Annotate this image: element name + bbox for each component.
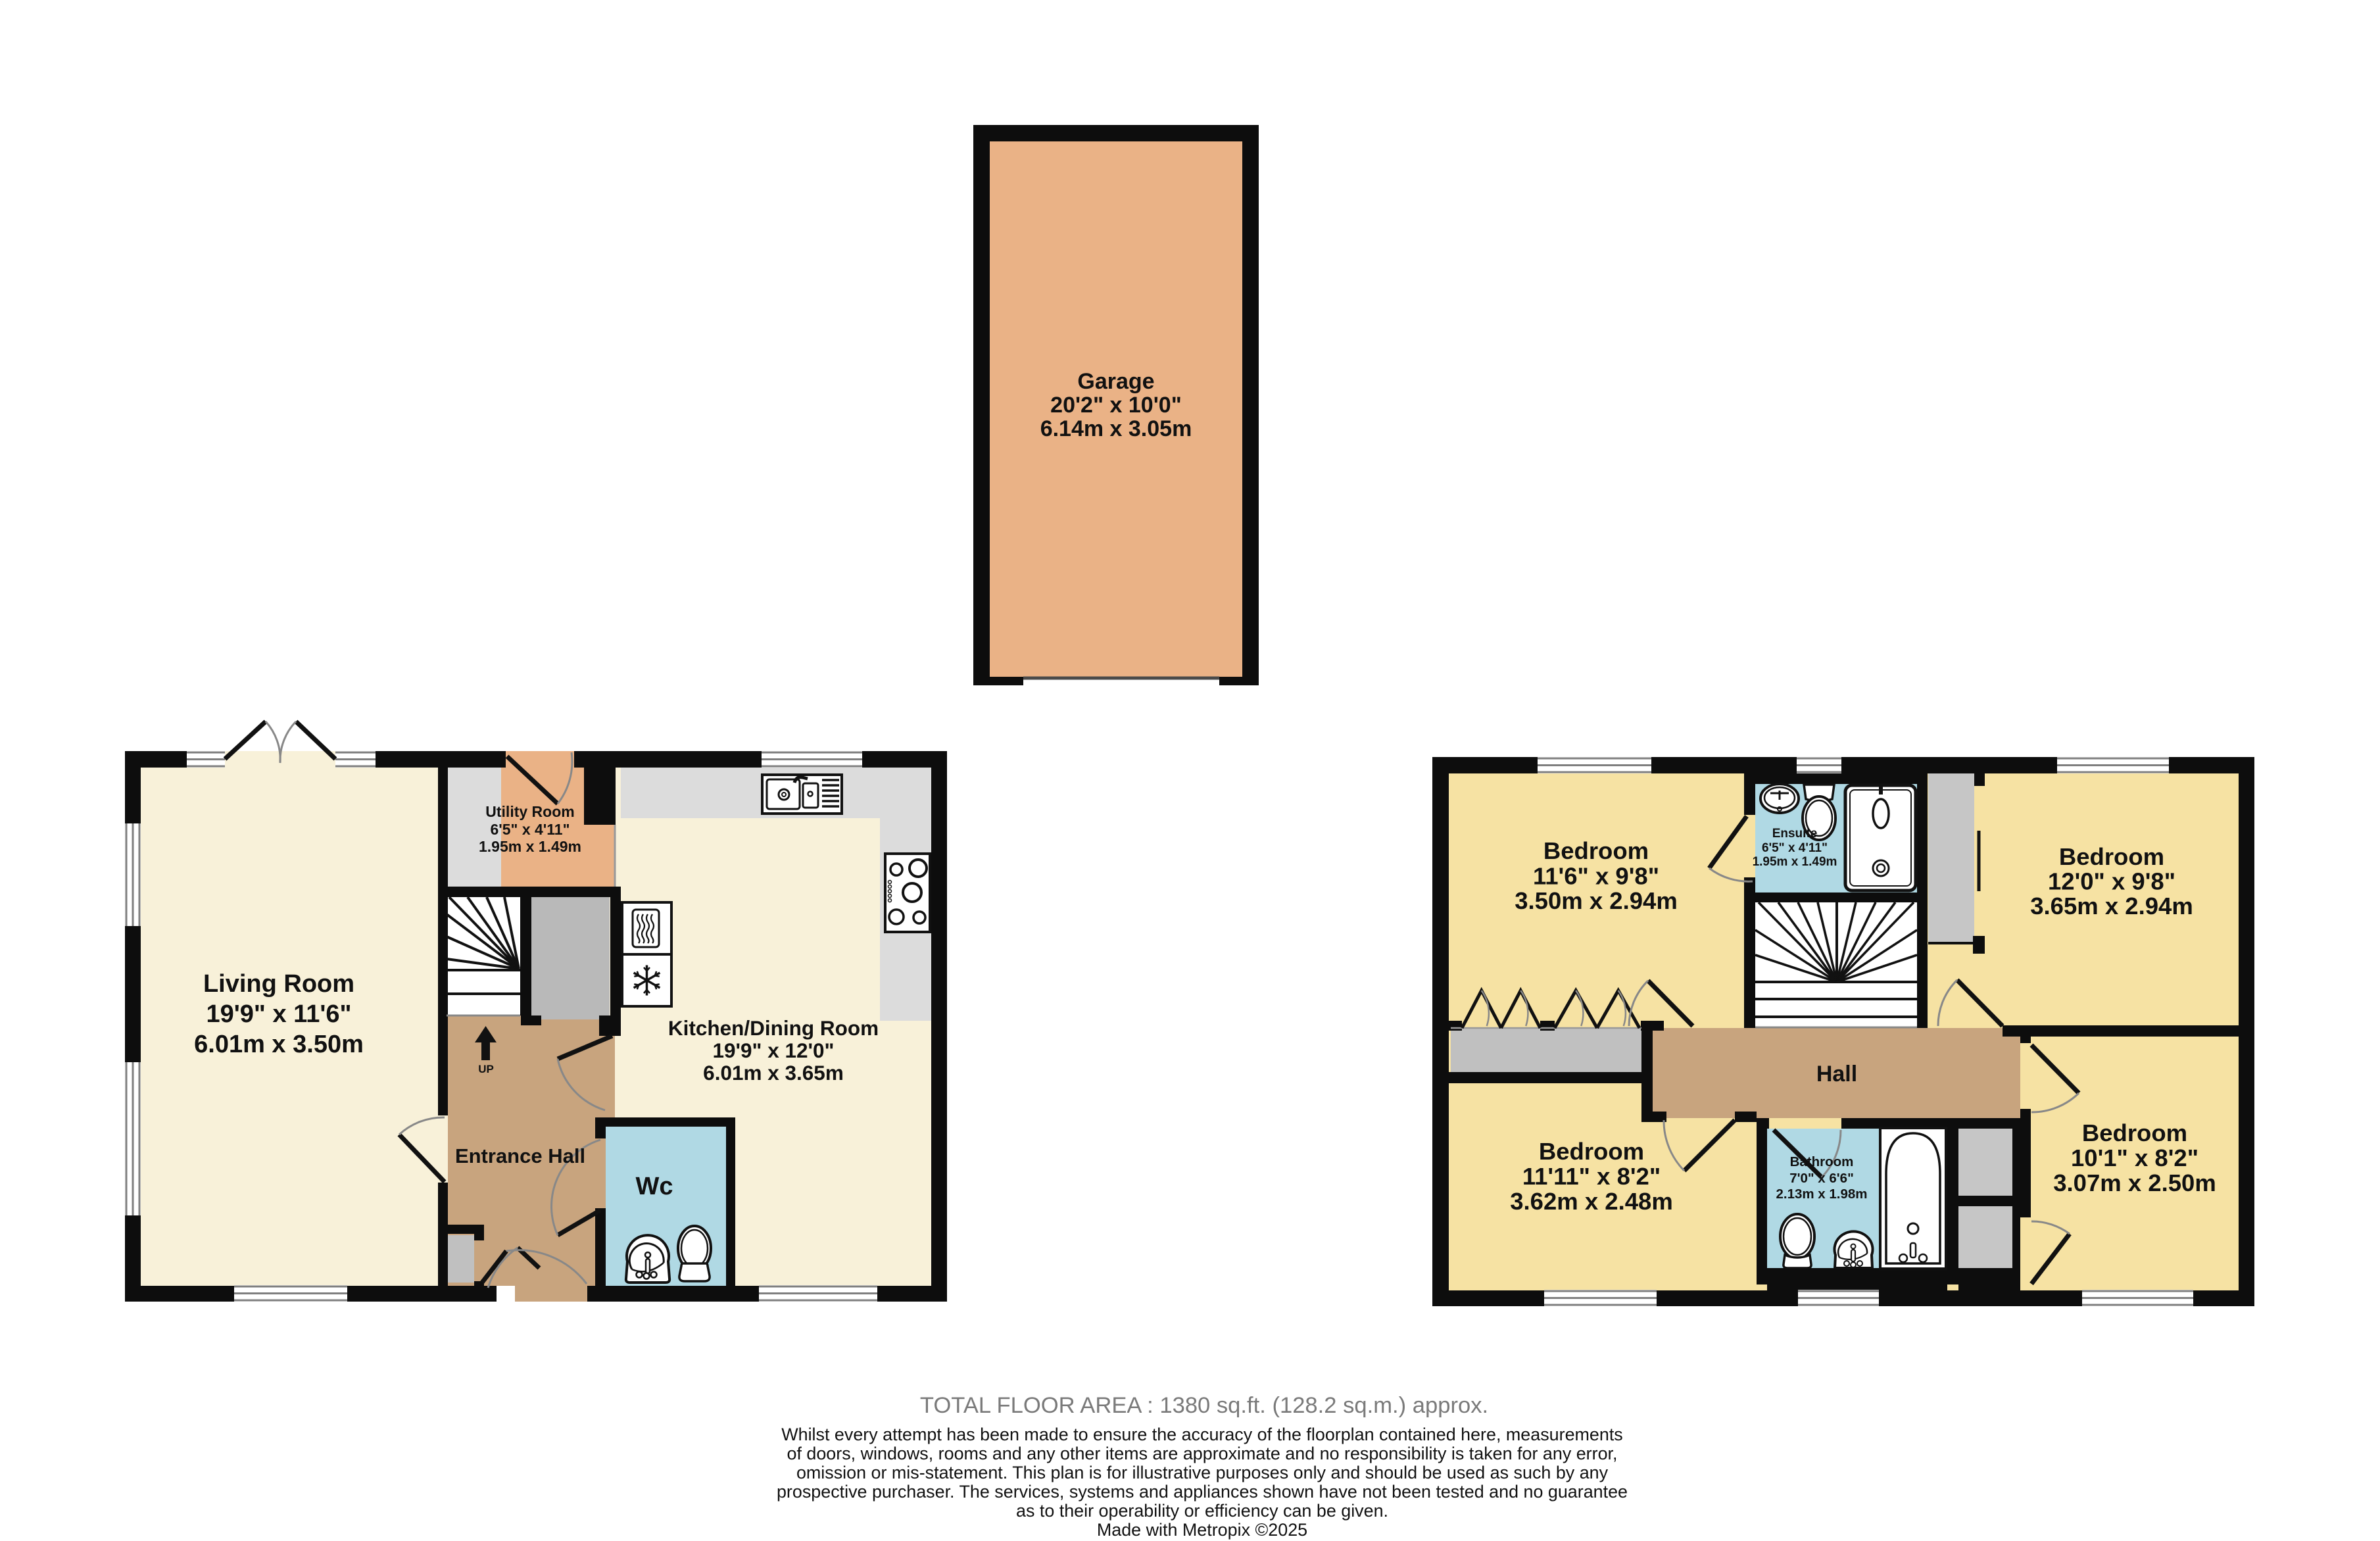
svg-text:19'9" x 12'0": 19'9" x 12'0" bbox=[713, 1039, 835, 1062]
svg-text:Utility Room: Utility Room bbox=[485, 803, 574, 820]
svg-text:Hall: Hall bbox=[1816, 1062, 1857, 1087]
svg-text:Bathroom: Bathroom bbox=[1790, 1154, 1854, 1169]
svg-text:Bedroom: Bedroom bbox=[2059, 843, 2164, 870]
svg-text:Garage: Garage bbox=[1077, 369, 1154, 394]
svg-text:Entrance Hall: Entrance Hall bbox=[455, 1144, 585, 1167]
svg-text:6.14m x 3.05m: 6.14m x 3.05m bbox=[1040, 416, 1192, 441]
svg-text:Bedroom: Bedroom bbox=[1539, 1138, 1644, 1165]
svg-text:omission or mis-statement. Thi: omission or mis-statement. This plan is … bbox=[796, 1463, 1609, 1482]
svg-text:11'6" x 9'8": 11'6" x 9'8" bbox=[1533, 863, 1659, 890]
svg-text:1.95m x 1.49m: 1.95m x 1.49m bbox=[479, 838, 581, 855]
svg-text:20'2" x 10'0": 20'2" x 10'0" bbox=[1050, 393, 1182, 418]
svg-text:3.65m x 2.94m: 3.65m x 2.94m bbox=[2030, 893, 2193, 919]
svg-text:Living Room: Living Room bbox=[203, 970, 354, 998]
svg-text:Bedroom: Bedroom bbox=[2082, 1119, 2187, 1146]
svg-text:7'0" x 6'6": 7'0" x 6'6" bbox=[1789, 1171, 1854, 1186]
svg-text:Bedroom: Bedroom bbox=[1543, 837, 1649, 864]
svg-text:prospective purchaser. The ser: prospective purchaser. The services, sys… bbox=[777, 1482, 1628, 1502]
svg-text:6'5" x 4'11": 6'5" x 4'11" bbox=[1762, 841, 1828, 855]
svg-text:10'1" x 8'2": 10'1" x 8'2" bbox=[2071, 1144, 2198, 1171]
svg-text:TOTAL FLOOR AREA : 1380 sq.ft.: TOTAL FLOOR AREA : 1380 sq.ft. (128.2 sq… bbox=[920, 1393, 1488, 1418]
svg-text:6.01m x 3.50m: 6.01m x 3.50m bbox=[194, 1031, 364, 1058]
svg-text:Ensuite: Ensuite bbox=[1772, 827, 1818, 841]
svg-text:11'11" x 8'2": 11'11" x 8'2" bbox=[1522, 1163, 1661, 1190]
svg-text:3.62m x 2.48m: 3.62m x 2.48m bbox=[1510, 1188, 1673, 1215]
svg-text:Whilst every attempt has been: Whilst every attempt has been made to en… bbox=[781, 1425, 1623, 1444]
svg-text:3.07m x 2.50m: 3.07m x 2.50m bbox=[2053, 1169, 2216, 1196]
svg-text:Made with Metropix ©2025: Made with Metropix ©2025 bbox=[1097, 1520, 1307, 1540]
svg-text:Kitchen/Dining Room: Kitchen/Dining Room bbox=[668, 1016, 879, 1040]
svg-text:Wc: Wc bbox=[636, 1173, 673, 1200]
svg-text:as to their operability or eff: as to their operability or efficiency ca… bbox=[1016, 1501, 1388, 1521]
svg-text:UP: UP bbox=[478, 1063, 494, 1075]
svg-text:2.13m x 1.98m: 2.13m x 1.98m bbox=[1776, 1186, 1867, 1202]
svg-text:of doors, windows, rooms and a: of doors, windows, rooms and any other i… bbox=[787, 1444, 1618, 1463]
svg-text:1.95m x 1.49m: 1.95m x 1.49m bbox=[1753, 855, 1837, 869]
svg-text:6'5" x 4'11": 6'5" x 4'11" bbox=[490, 821, 570, 838]
svg-text:19'9" x 11'6": 19'9" x 11'6" bbox=[206, 1000, 351, 1028]
svg-text:6.01m x 3.65m: 6.01m x 3.65m bbox=[703, 1061, 844, 1085]
svg-text:3.50m x 2.94m: 3.50m x 2.94m bbox=[1515, 887, 1678, 914]
svg-text:12'0" x 9'8": 12'0" x 9'8" bbox=[2048, 868, 2175, 895]
